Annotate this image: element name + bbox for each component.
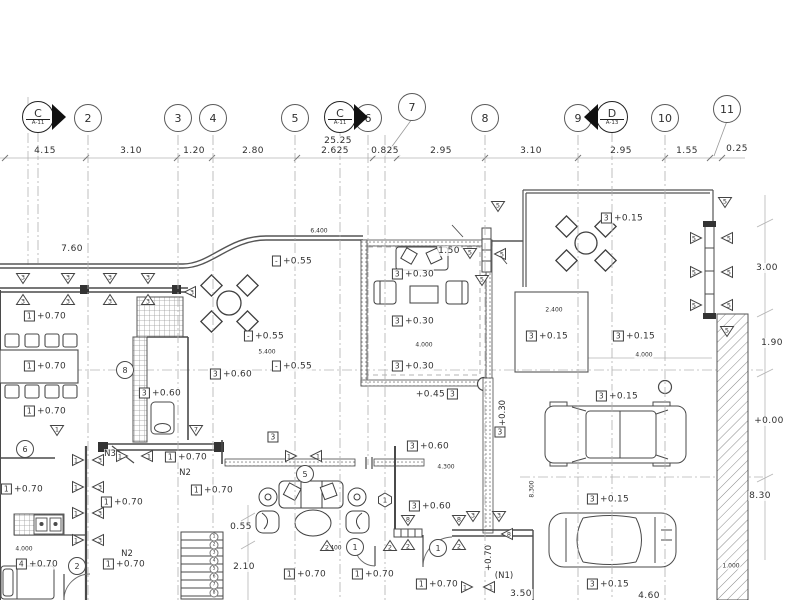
dining-table xyxy=(0,334,78,398)
terrace xyxy=(515,190,713,372)
floor-plan-sheet: 25.25 4.153.101.202.802.6250.8252.953.10… xyxy=(0,0,800,600)
entry-window xyxy=(452,225,507,272)
column xyxy=(659,381,672,394)
door-arcs xyxy=(64,535,452,600)
patio-table-courtyard xyxy=(201,275,258,332)
stairs xyxy=(181,532,223,599)
living-sofa-set xyxy=(374,247,468,304)
car-sedan xyxy=(549,513,676,567)
bathroom-walls xyxy=(98,337,224,463)
terrace-window xyxy=(703,221,716,319)
car-suv xyxy=(545,402,686,466)
plan-linework xyxy=(0,0,800,600)
bed xyxy=(1,566,54,599)
patio-table-terrace xyxy=(556,216,616,271)
toilet xyxy=(151,402,174,434)
lounge-sofa-set xyxy=(256,481,369,536)
kitchen-sink xyxy=(14,514,64,535)
left-window-wall xyxy=(0,285,188,294)
